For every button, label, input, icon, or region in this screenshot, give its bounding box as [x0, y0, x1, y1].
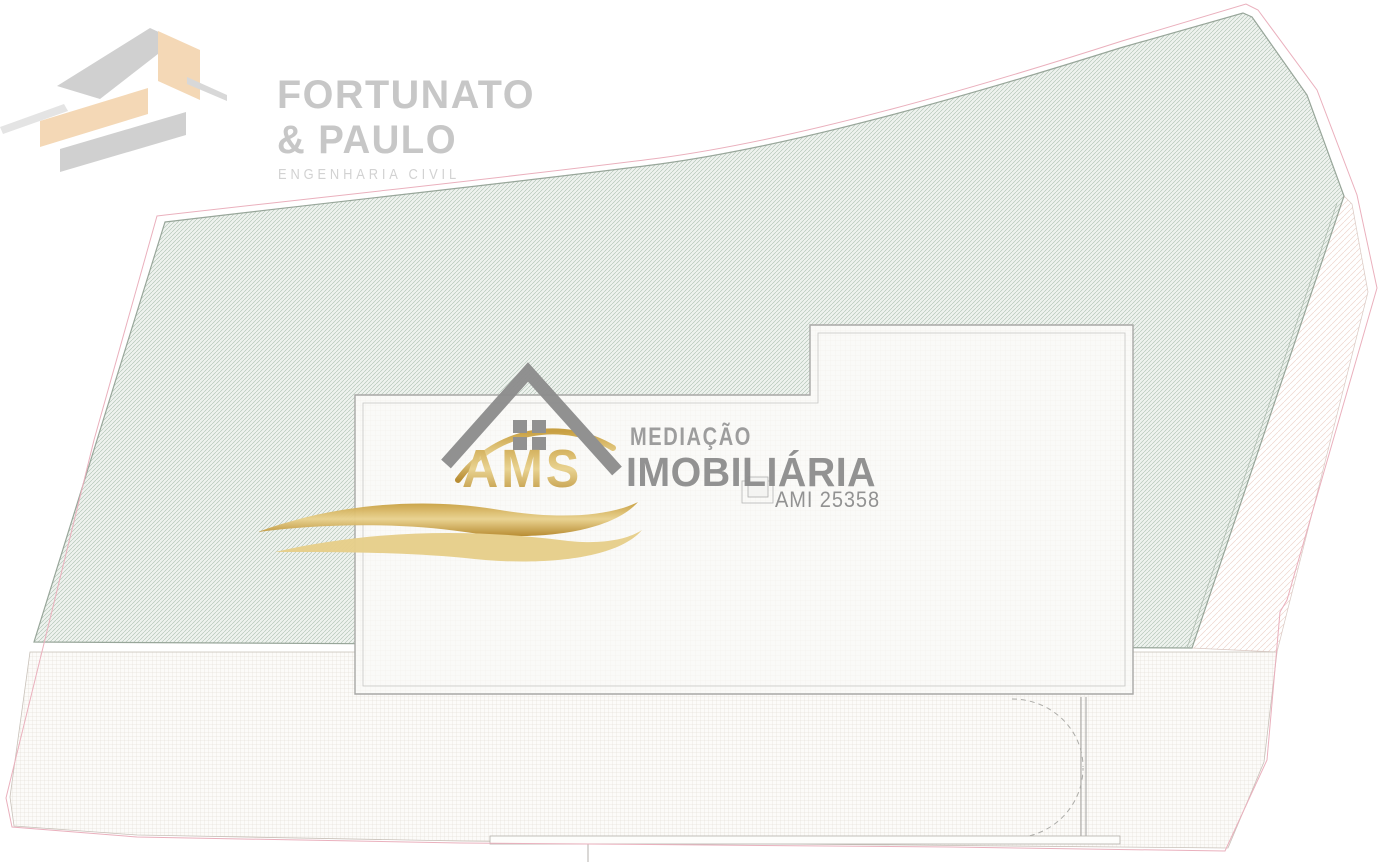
fp-logo-name-line1: FORTUNATO: [277, 73, 535, 117]
gold-wave-icon: [258, 502, 642, 562]
fp-logo-tagline: ENGENHARIA CIVIL: [278, 166, 460, 183]
ams-acronym: AMS: [462, 439, 582, 499]
building-3d-icon: [0, 28, 227, 172]
ams-caption: MEDIAÇÃO: [630, 421, 752, 451]
ams-license-number: AMI 25358: [775, 487, 880, 512]
site-plan-canvas: FORTUNATO & PAULO ENGENHARIA CIVIL AMS M…: [0, 0, 1379, 862]
fortunato-paulo-logo: FORTUNATO & PAULO ENGENHARIA CIVIL: [0, 0, 560, 200]
retaining-wall: [490, 836, 1120, 844]
ams-imobiliaria-logo: AMS MEDIAÇÃO IMOBILIÁRIA AMI 25358: [180, 320, 920, 570]
fp-logo-name-line2: & PAULO: [277, 118, 457, 162]
